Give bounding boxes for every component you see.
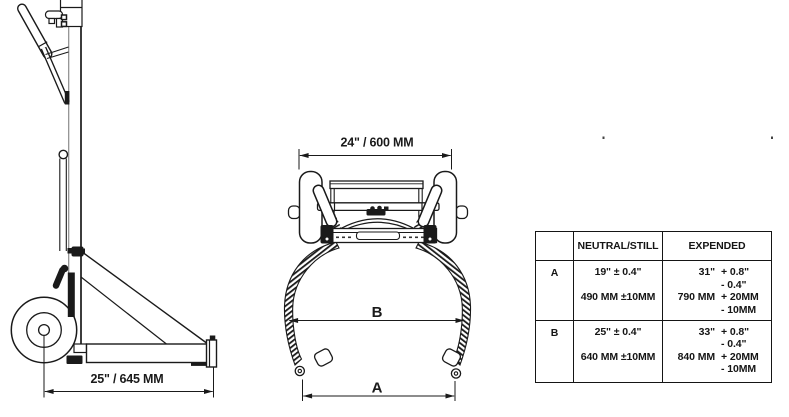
- expended-mm-plus-tol: + 20MM: [721, 291, 759, 304]
- expended-mm-plus-tol: + 20MM: [721, 351, 759, 364]
- front-top-dimension: 24" / 600 MM: [299, 136, 452, 170]
- release-lever: [56, 270, 63, 286]
- left-wheel-hub-tab: [289, 206, 301, 219]
- expended-inches-minus-tol: - 0.4": [721, 279, 749, 292]
- side-view-drawing: 25" / 645 MM: [11, 0, 216, 398]
- expended-mm-value: 840 MM: [663, 351, 715, 376]
- stray-dot: [603, 137, 605, 140]
- support-brace: [68, 248, 211, 346]
- dimension-b: B: [289, 304, 464, 321]
- expended-mm-value: 790 MM: [663, 291, 715, 316]
- expended-mm-minus-tol: - 10MM: [721, 363, 759, 376]
- right-wheel-hub-tab: [456, 206, 468, 219]
- neutral-mm-value: 490 MM ±10MM: [581, 291, 656, 304]
- neutral-inches-value: 25" ± 0.4": [595, 326, 642, 339]
- table-header-expended: EXPENDED: [662, 232, 771, 260]
- stray-dot: [771, 137, 773, 140]
- expended-inches-plus-tol: + 0.8": [721, 266, 749, 279]
- pump-rod: [59, 150, 67, 251]
- expended-inches-minus-tol: - 0.4": [721, 338, 749, 351]
- left-corner-bracket: [321, 225, 334, 244]
- front-top-dimension-label: 24" / 600 MM: [340, 136, 413, 150]
- table-cell-neutral-a: 19" ± 0.4" 490 MM ±10MM: [573, 260, 662, 320]
- expended-inches-value: 31": [663, 266, 715, 291]
- side-base-dimension-label: 25" / 645 MM: [90, 372, 163, 386]
- neutral-inches-value: 19" ± 0.4": [595, 266, 642, 279]
- dimension-b-label: B: [372, 304, 383, 321]
- expended-inches-value: 33": [663, 326, 715, 351]
- table-header-neutral: NEUTRAL/STILL: [573, 232, 662, 260]
- neutral-mm-value: 640 MM ±10MM: [581, 351, 656, 364]
- table-row-label: B: [536, 320, 573, 383]
- dimension-a: A: [303, 380, 456, 402]
- clamp-band-left: [284, 242, 339, 365]
- base-beam: [74, 336, 217, 368]
- dimension-a-label: A: [372, 380, 383, 397]
- expended-mm-minus-tol: - 10MM: [721, 304, 759, 317]
- table-cell-expended-b: 33" + 0.8" - 0.4" 840 MM + 20MM - 10MM: [662, 320, 771, 383]
- table-cell-expended-a: 31" + 0.8" - 0.4" 790 MM + 20MM - 10MM: [662, 260, 771, 320]
- technical-drawing-page: 25" / 645 MM 24" / 600 MM: [0, 0, 789, 417]
- table-cell-neutral-b: 25" ± 0.4" 640 MM ±10MM: [573, 320, 662, 383]
- table-corner-cell: [536, 232, 573, 260]
- right-corner-bracket: [424, 225, 437, 244]
- left-foot: [295, 348, 334, 376]
- expended-inches-plus-tol: + 0.8": [721, 326, 749, 339]
- clamp-band-right: [416, 242, 471, 365]
- front-view-drawing: 24" / 600 MM: [284, 136, 470, 402]
- spec-table: NEUTRAL/STILL EXPENDED A 19" ± 0.4" 490 …: [535, 231, 772, 383]
- table-row-label: A: [536, 260, 573, 320]
